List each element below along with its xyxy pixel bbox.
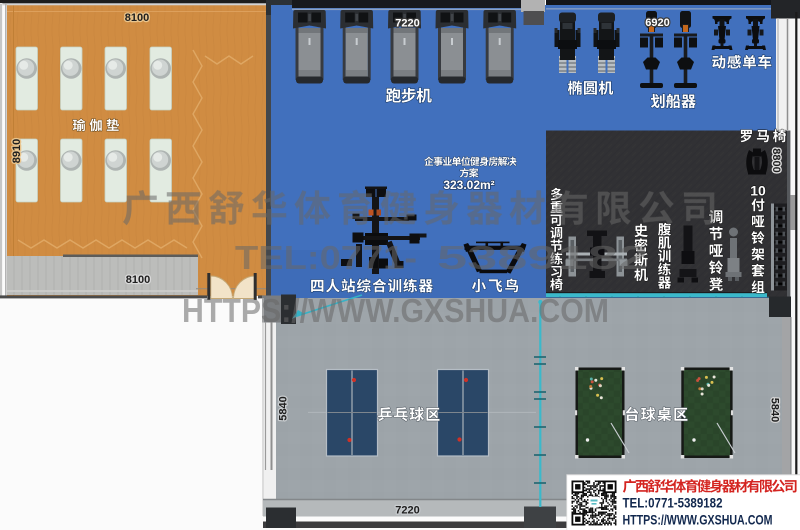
svg-text:5840: 5840	[278, 396, 290, 420]
svg-text:8800: 8800	[770, 148, 782, 172]
svg-text:323.02m²: 323.02m²	[443, 178, 494, 192]
svg-text:TEL:0771-: TEL:0771-	[235, 239, 417, 276]
svg-text:8910: 8910	[11, 139, 23, 163]
svg-text:6920: 6920	[645, 17, 669, 29]
svg-text:8100: 8100	[126, 274, 150, 286]
svg-text:7220: 7220	[395, 18, 419, 30]
svg-text:7220: 7220	[395, 505, 419, 517]
svg-text:HTTPS://WWW.GXSHUA.COM: HTTPS://WWW.GXSHUA.COM	[623, 512, 773, 528]
svg-text:HTTPS://WWW.GXSHUA.COM: HTTPS://WWW.GXSHUA.COM	[182, 292, 609, 329]
svg-text:5389182: 5389182	[437, 239, 648, 276]
svg-text:8100: 8100	[125, 12, 149, 24]
svg-text:5840: 5840	[769, 398, 781, 422]
svg-text:10: 10	[750, 183, 766, 199]
svg-text:TEL:0771-5389182: TEL:0771-5389182	[623, 495, 723, 511]
